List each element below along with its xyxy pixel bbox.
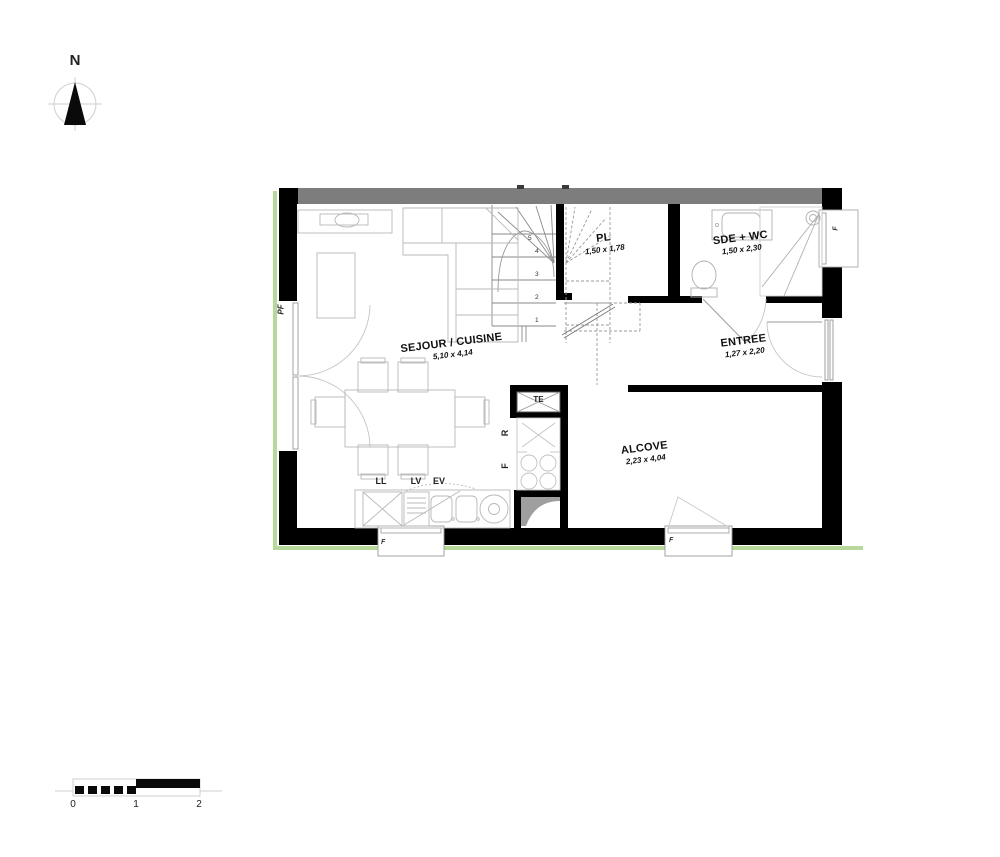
window-f-right-label: F bbox=[833, 221, 840, 237]
french-window-pf-label: PF bbox=[277, 302, 286, 318]
refrigerator-label: R bbox=[500, 425, 510, 441]
svg-text:1: 1 bbox=[535, 317, 539, 324]
under-stair-shade bbox=[521, 497, 560, 526]
stair-step-numbers: 1 2 3 4 5 bbox=[528, 235, 539, 324]
sofa bbox=[403, 208, 518, 342]
double-sink bbox=[431, 496, 479, 522]
svg-text:2: 2 bbox=[535, 294, 539, 301]
tv-unit bbox=[298, 210, 392, 233]
shower bbox=[760, 207, 822, 296]
north-label: N bbox=[40, 52, 110, 69]
dishwasher bbox=[404, 492, 429, 526]
window-f-bottom-left-label: F bbox=[381, 539, 385, 546]
electrical-panel-label: TE bbox=[517, 395, 560, 404]
hob-burners bbox=[521, 455, 556, 489]
scale-bar-graphic bbox=[50, 770, 230, 818]
washing-machine-label: LL bbox=[369, 476, 393, 486]
window-f-right bbox=[819, 210, 858, 267]
dishwasher-label: LV bbox=[404, 476, 428, 486]
oven-label: F bbox=[500, 458, 510, 474]
svg-text:3: 3 bbox=[535, 271, 539, 278]
svg-text:4: 4 bbox=[535, 248, 539, 255]
svg-text:5: 5 bbox=[528, 235, 532, 242]
kitchen-tall-unit bbox=[517, 392, 560, 490]
round-fixture bbox=[480, 495, 508, 523]
french-window-pf bbox=[279, 301, 370, 451]
scale-bar: 0 1 2 bbox=[50, 770, 230, 818]
window-f-bottom-right-label: F bbox=[669, 537, 673, 544]
sink-label: EV bbox=[427, 476, 451, 486]
floor-plan-sheet: N bbox=[0, 0, 1000, 857]
scale-tick-1: 1 bbox=[129, 799, 143, 810]
north-arrow: N bbox=[40, 50, 120, 140]
scale-tick-2: 2 bbox=[192, 799, 206, 810]
kitchen-counter bbox=[355, 483, 510, 528]
scale-tick-0: 0 bbox=[66, 799, 80, 810]
toilet bbox=[691, 261, 717, 297]
dining-table bbox=[311, 358, 489, 479]
window-f-bottom-right bbox=[665, 497, 732, 556]
floor-plan: 1 2 3 4 5 bbox=[270, 185, 870, 577]
coffee-table bbox=[317, 253, 355, 318]
window-f-bottom-left bbox=[378, 526, 444, 556]
